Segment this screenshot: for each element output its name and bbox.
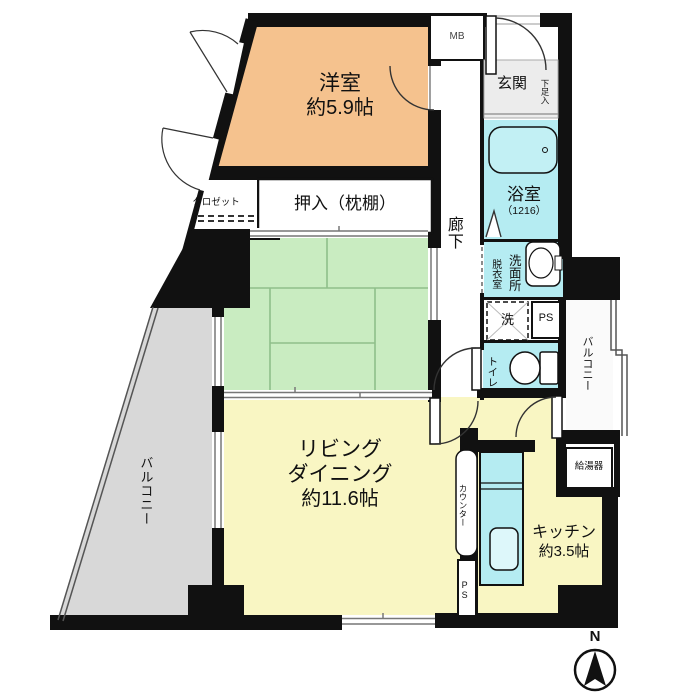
compass-north-label: N: [585, 628, 605, 646]
balcony-left-label: バルコニー: [138, 428, 153, 553]
closet-label: クロゼット: [176, 197, 256, 208]
dressing-room-label: 脱衣室: [489, 246, 501, 302]
casement-window-1: [190, 30, 238, 93]
western-room-label: 洋室 約5.9帖: [255, 72, 425, 120]
bath-label: 浴室 （1216）: [483, 185, 565, 217]
pipe-space-label-2: PS: [459, 566, 470, 614]
counter-label: カウンター: [458, 457, 468, 553]
washer-label: 洗: [487, 312, 528, 327]
casement-window-2: [162, 128, 213, 190]
toilet-door: [434, 348, 481, 390]
hallway-label: 廊下: [443, 204, 462, 262]
kitchen-label: キッチン 約3.5帖: [516, 524, 612, 561]
toilet-icon: [510, 352, 558, 384]
sink-icon: [526, 242, 562, 286]
kitchen-counter-icon: [480, 452, 523, 585]
water-heater-label: 給湯器: [566, 461, 612, 472]
balcony-right-label: バルコニー: [580, 321, 593, 406]
shoe-box-label: 下足入: [540, 66, 550, 118]
bathtub-icon: [489, 127, 557, 173]
meter-box-label: MB: [430, 31, 484, 43]
compass-icon: [575, 650, 615, 690]
entrance-label: 玄関: [484, 75, 540, 93]
pipe-space-label: PS: [532, 312, 560, 325]
futon-closet-label: 押入（枕棚）: [262, 194, 428, 214]
washroom-label: 洗面所: [506, 243, 521, 303]
floor-plan: 洋室 約5.9帖 押入（枕棚） クロゼット MB 玄関 下足入 廊下 浴室 （1…: [0, 0, 700, 698]
living-dining-label: リビング ダイニング 約11.6帖: [240, 438, 440, 511]
toilet-label: トイレ: [486, 347, 498, 397]
